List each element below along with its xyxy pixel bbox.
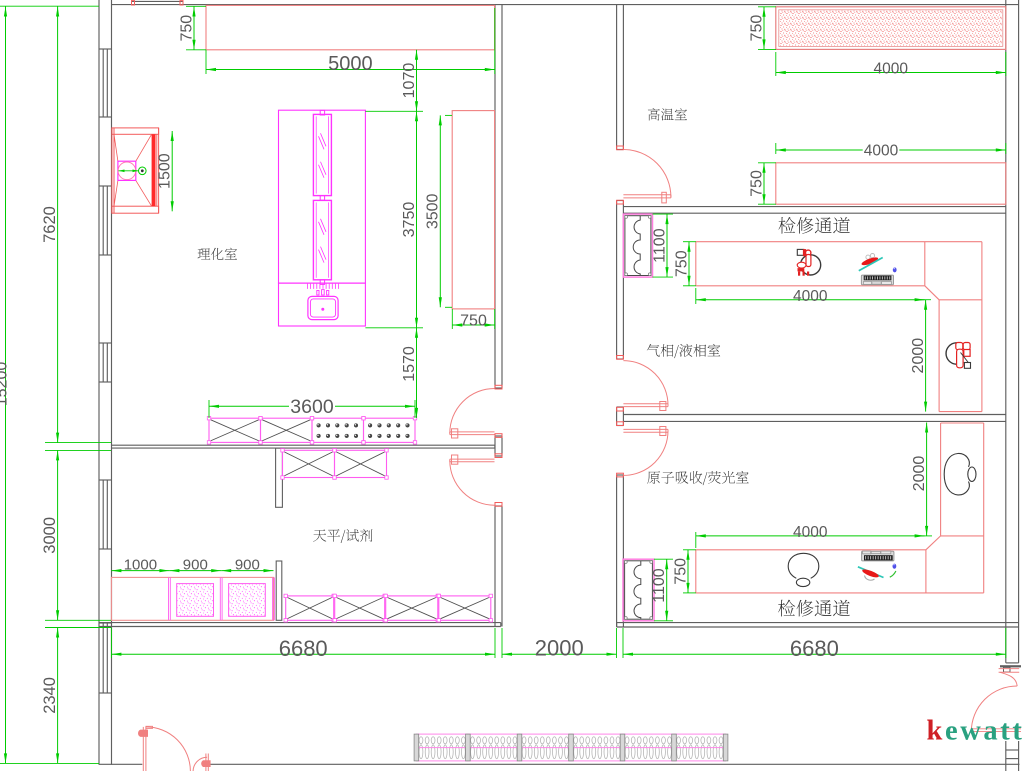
svg-text:5000: 5000 xyxy=(328,53,373,75)
svg-text:1000: 1000 xyxy=(124,556,157,573)
svg-text:750: 750 xyxy=(460,313,487,330)
svg-text:1100: 1100 xyxy=(651,568,668,603)
svg-text:750: 750 xyxy=(672,558,689,585)
svg-text:7620: 7620 xyxy=(41,206,59,243)
svg-text:1070: 1070 xyxy=(401,63,418,99)
svg-text:4000: 4000 xyxy=(793,288,828,305)
svg-text:kewatt: kewatt xyxy=(927,716,1025,747)
svg-text:750: 750 xyxy=(748,170,765,197)
svg-text:4000: 4000 xyxy=(874,61,909,78)
svg-text:3000: 3000 xyxy=(41,517,59,554)
svg-text:1100: 1100 xyxy=(651,228,668,263)
svg-text:1500: 1500 xyxy=(157,153,174,189)
svg-text:3500: 3500 xyxy=(425,193,442,229)
svg-text:750: 750 xyxy=(178,15,195,42)
svg-text:1570: 1570 xyxy=(401,346,418,382)
svg-text:2000: 2000 xyxy=(535,635,584,660)
svg-text:2340: 2340 xyxy=(41,677,59,714)
svg-text:3750: 3750 xyxy=(401,202,418,238)
svg-text:6680: 6680 xyxy=(279,636,328,661)
svg-text:3600: 3600 xyxy=(290,396,334,418)
svg-text:6680: 6680 xyxy=(790,636,839,661)
svg-text:2000: 2000 xyxy=(911,456,928,492)
svg-text:15200: 15200 xyxy=(0,362,11,407)
svg-text:4000: 4000 xyxy=(864,143,899,160)
svg-text:4000: 4000 xyxy=(793,524,828,541)
svg-text:900: 900 xyxy=(235,556,260,573)
svg-text:900: 900 xyxy=(183,556,208,573)
svg-text:750: 750 xyxy=(748,15,765,42)
svg-text:2000: 2000 xyxy=(910,338,927,374)
svg-text:750: 750 xyxy=(673,250,690,277)
